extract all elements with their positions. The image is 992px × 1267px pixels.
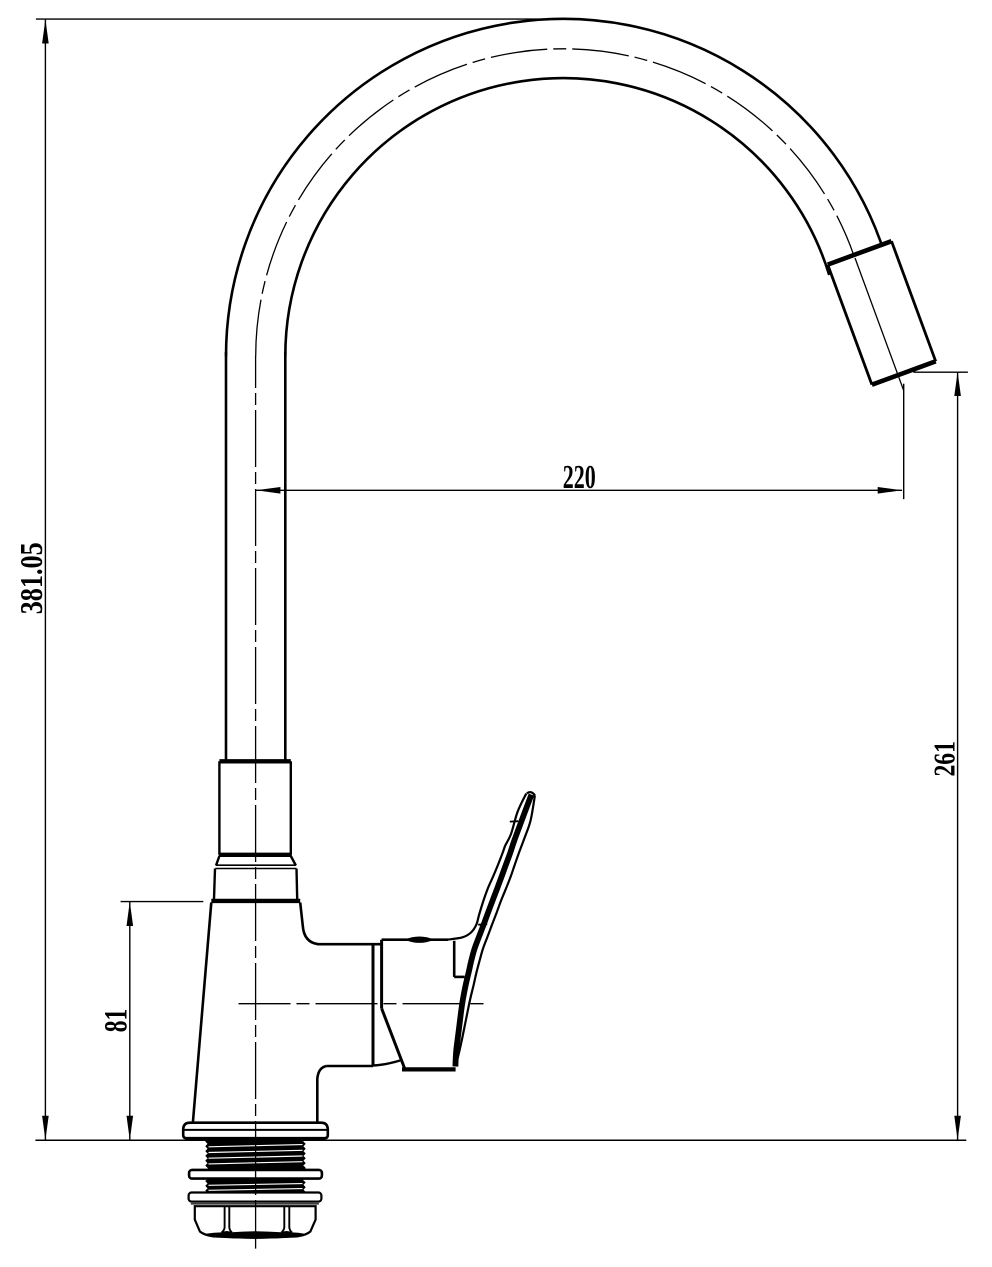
svg-text:220: 220	[563, 459, 596, 496]
svg-text:381.05: 381.05	[14, 542, 49, 614]
svg-text:81: 81	[99, 1009, 135, 1033]
svg-text:261: 261	[928, 741, 962, 777]
